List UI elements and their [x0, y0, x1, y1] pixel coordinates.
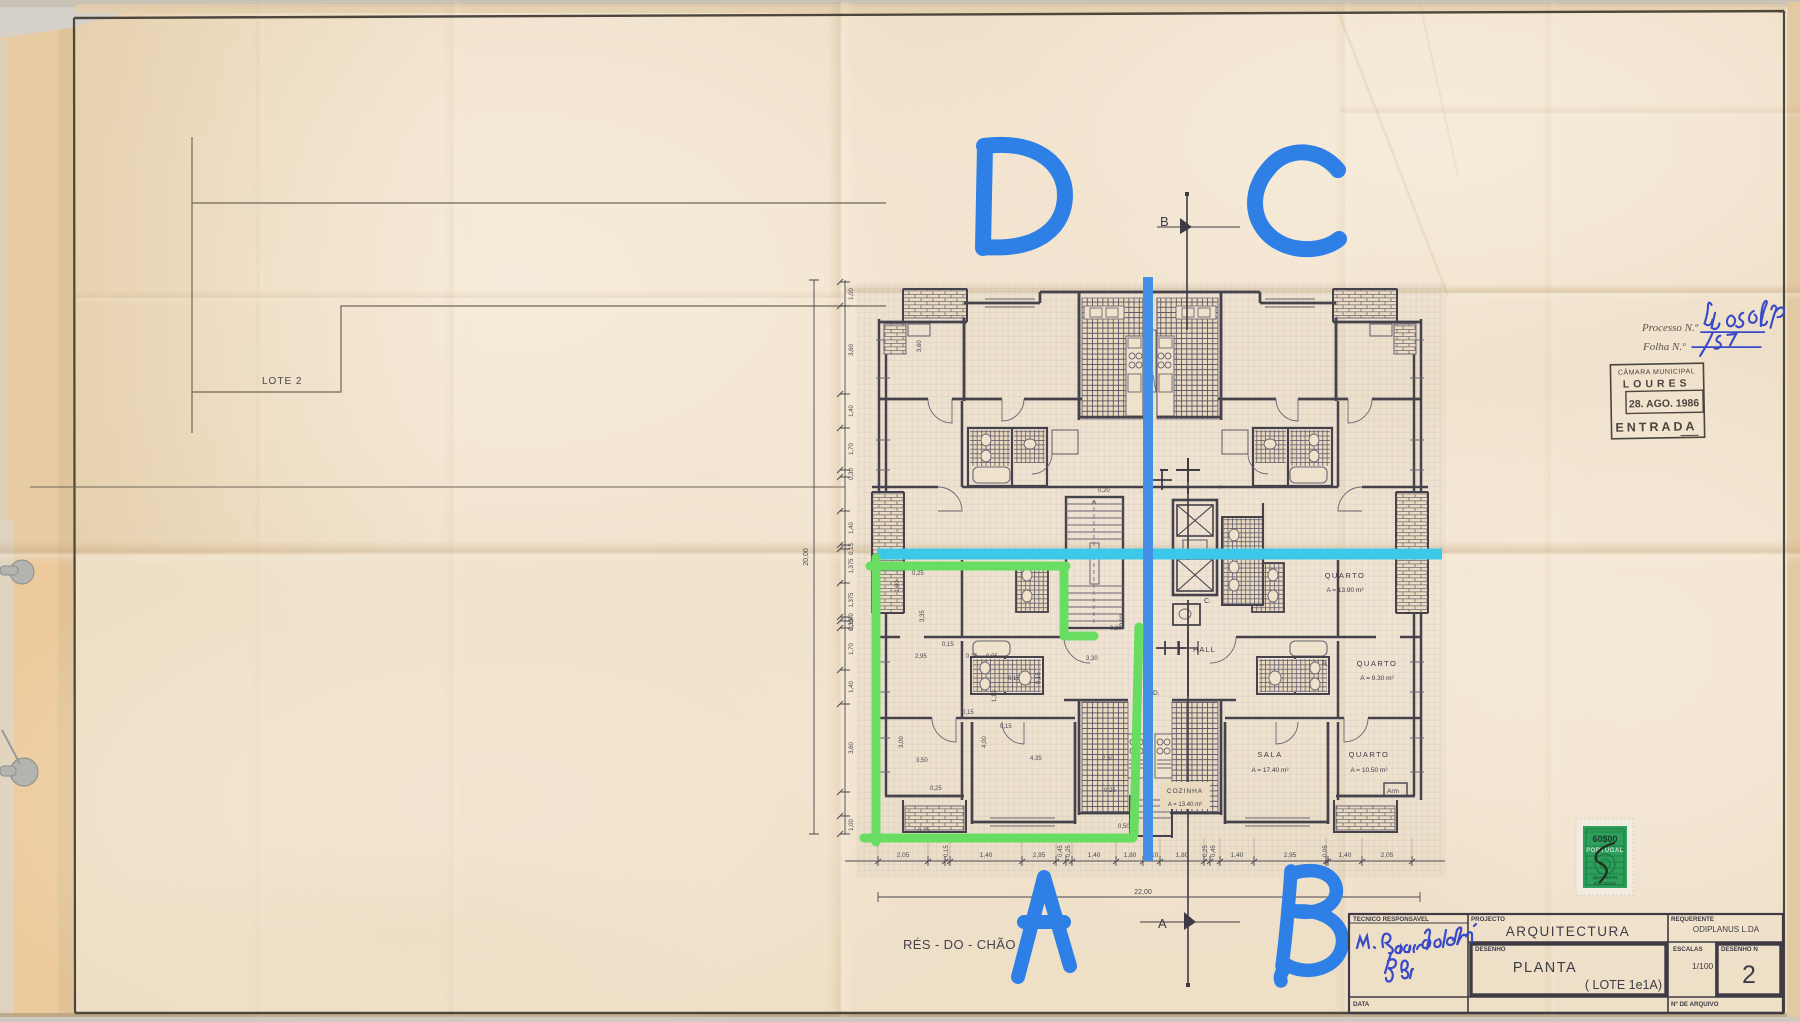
svg-text:0,30: 0,30: [849, 468, 855, 480]
svg-text:0,50: 0,50: [1118, 824, 1130, 830]
svg-text:1,00: 1,00: [895, 580, 901, 592]
svg-text:LOURES: LOURES: [1623, 377, 1691, 390]
svg-text:REQUERENTE: REQUERENTE: [1671, 916, 1714, 923]
svg-text:DESENHO N: DESENHO N: [1721, 946, 1758, 953]
svg-text:Folha N.º: Folha N.º: [1642, 341, 1686, 353]
svg-text:2,00: 2,00: [1120, 614, 1126, 626]
svg-text:3,00: 3,00: [899, 736, 905, 748]
svg-text:0,45: 0,45: [1058, 845, 1064, 857]
svg-text:2,05: 2,05: [897, 852, 910, 859]
svg-text:A = 9.30 m²: A = 9.30 m²: [1360, 675, 1394, 682]
svg-text:20,00: 20,00: [803, 548, 810, 566]
svg-text:0,20: 0,20: [1098, 488, 1110, 494]
svg-text:C.: C.: [1204, 598, 1211, 605]
svg-text:0,20: 0,20: [1110, 626, 1122, 632]
svg-text:TECNICO RESPONSAVEL: TECNICO RESPONSAVEL: [1353, 916, 1429, 923]
svg-text:ESCALAS: ESCALAS: [1673, 946, 1703, 953]
svg-text:0,15: 0,15: [1000, 724, 1012, 730]
svg-text:A = 13.90 m²: A = 13.90 m²: [1326, 587, 1364, 594]
svg-text:3,30: 3,30: [1086, 656, 1098, 662]
svg-text:0,35: 0,35: [966, 654, 978, 660]
svg-text:0,15: 0,15: [944, 845, 950, 857]
svg-text:28. AGO. 1986: 28. AGO. 1986: [1629, 397, 1700, 410]
svg-text:ENTRADA: ENTRADA: [1615, 419, 1697, 434]
svg-text:D.: D.: [1153, 690, 1160, 697]
svg-text:RÉS - DO - CHÃO: RÉS - DO - CHÃO: [903, 937, 1016, 952]
svg-text:3,60: 3,60: [917, 340, 923, 352]
svg-text:Arm: Arm: [1387, 788, 1399, 795]
svg-text:1,40: 1,40: [849, 405, 855, 417]
svg-text:ARQUITECTURA: ARQUITECTURA: [1506, 924, 1631, 939]
svg-text:DESENHO: DESENHO: [1475, 946, 1506, 953]
svg-text:3,60: 3,60: [849, 344, 855, 356]
svg-text:B: B: [1160, 214, 1169, 229]
svg-text:1,40: 1,40: [849, 522, 855, 534]
svg-text:1,80: 1,80: [1176, 852, 1189, 859]
svg-text:0,25: 0,25: [930, 786, 942, 792]
svg-text:2: 2: [1742, 961, 1756, 989]
svg-text:R.: R.: [1322, 661, 1329, 668]
svg-text:2,50: 2,50: [1102, 756, 1114, 762]
svg-text:0,15: 0,15: [1008, 676, 1020, 682]
svg-text:1,375: 1,375: [849, 592, 855, 608]
svg-text:A = 17.40 m²: A = 17.40 m²: [1251, 767, 1289, 774]
svg-text:2,95: 2,95: [1284, 852, 1297, 859]
svg-text:ODIPLANUS L.DA: ODIPLANUS L.DA: [1693, 925, 1760, 934]
svg-text:3,35: 3,35: [920, 610, 926, 622]
svg-text:0,45: 0,45: [1211, 845, 1217, 857]
svg-text:QUARTO: QUARTO: [1357, 659, 1398, 668]
svg-text:A: A: [1158, 916, 1167, 931]
svg-text:DATA: DATA: [1353, 1001, 1370, 1008]
svg-text:0,15: 0,15: [1036, 672, 1042, 684]
svg-text:4,00: 4,00: [982, 736, 988, 748]
svg-text:QUARTO: QUARTO: [1349, 750, 1390, 759]
svg-text:PROJECTO: PROJECTO: [1471, 916, 1505, 923]
svg-text:COZINHA: COZINHA: [1167, 788, 1203, 795]
svg-text:1,40: 1,40: [1339, 852, 1352, 859]
svg-text:0,30: 0,30: [849, 619, 855, 631]
svg-text:1,375: 1,375: [849, 558, 855, 574]
svg-text:1,00: 1,00: [849, 288, 855, 300]
svg-text:A = 10.50 m²: A = 10.50 m²: [1350, 767, 1388, 774]
svg-text:1,70: 1,70: [849, 643, 855, 655]
svg-text:HALL: HALL: [1193, 645, 1216, 654]
svg-text:0,15: 0,15: [849, 543, 855, 555]
svg-text:1,80: 1,80: [1124, 852, 1137, 859]
svg-text:4,35: 4,35: [1030, 756, 1042, 762]
svg-text:QUARTO: QUARTO: [1325, 571, 1366, 580]
svg-text:1,00: 1,00: [849, 819, 855, 831]
svg-text:( LOTE 1e1A): ( LOTE 1e1A): [1585, 978, 1662, 992]
svg-text:0,25: 0,25: [1104, 788, 1116, 794]
svg-text:3,60: 3,60: [849, 742, 855, 754]
svg-text:1,40: 1,40: [980, 852, 993, 859]
svg-text:ESCUDOS: ESCUDOS: [1594, 881, 1616, 886]
svg-text:PLANTA: PLANTA: [1513, 960, 1577, 976]
svg-text:0,25: 0,25: [918, 828, 930, 834]
svg-text:1,40: 1,40: [849, 681, 855, 693]
svg-text:0,25: 0,25: [912, 571, 924, 577]
svg-text:0,05: 0,05: [1323, 845, 1329, 857]
svg-text:Nº DE ARQUIVO: Nº DE ARQUIVO: [1671, 1001, 1719, 1008]
svg-text:1,70: 1,70: [849, 443, 855, 455]
svg-text:1,40: 1,40: [1231, 852, 1244, 859]
svg-text:0,15: 0,15: [962, 710, 974, 716]
svg-text:0,25: 0,25: [1203, 845, 1209, 857]
svg-text:1,40: 1,40: [1088, 852, 1101, 859]
svg-text:3,50: 3,50: [916, 758, 928, 764]
svg-text:22,00: 22,00: [1134, 889, 1152, 896]
svg-text:1,10: 1,10: [992, 690, 998, 702]
svg-text:Processo N.º: Processo N.º: [1641, 322, 1699, 334]
svg-text:2,95: 2,95: [1033, 852, 1046, 859]
svg-text:A = 13.40 m²: A = 13.40 m²: [1168, 802, 1202, 808]
svg-text:PORTUGAL: PORTUGAL: [1586, 848, 1624, 854]
svg-text:0,95: 0,95: [986, 654, 998, 660]
svg-text:0,15: 0,15: [942, 642, 954, 648]
svg-text:1/100: 1/100: [1692, 961, 1714, 971]
svg-text:2,95: 2,95: [915, 654, 927, 660]
svg-text:0,25: 0,25: [1066, 845, 1072, 857]
svg-text:2,05: 2,05: [1381, 852, 1394, 859]
svg-text:SALA: SALA: [1257, 750, 1282, 759]
svg-text:LOTE 2: LOTE 2: [262, 376, 302, 387]
